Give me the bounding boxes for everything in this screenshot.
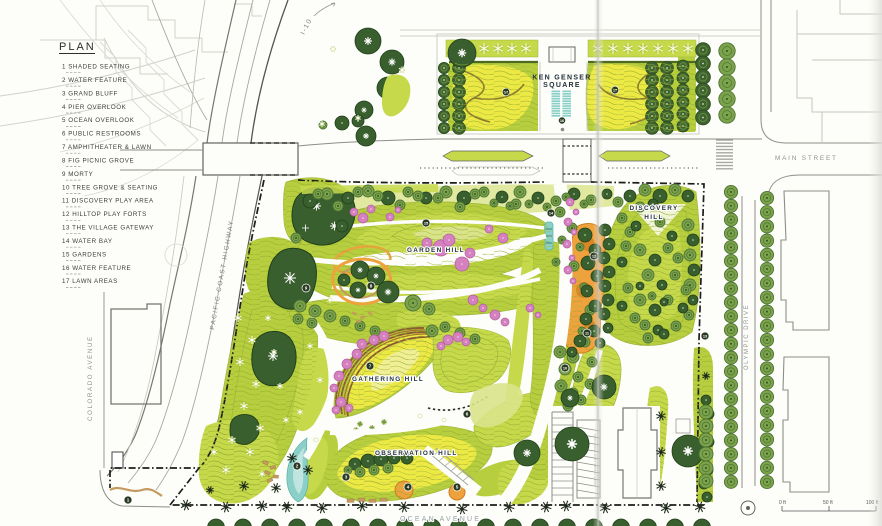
svg-text:11 DISCOVERY PLAY AREA: 11 DISCOVERY PLAY AREA bbox=[62, 198, 154, 205]
svg-text:16 WATER FEATURE: 16 WATER FEATURE bbox=[62, 265, 131, 272]
svg-text:3 GRAND BLUFF: 3 GRAND BLUFF bbox=[62, 90, 118, 97]
svg-text:2 WATER FEATURE: 2 WATER FEATURE bbox=[62, 77, 127, 84]
svg-text:14 WATER BAY: 14 WATER BAY bbox=[62, 238, 113, 245]
svg-text:5: 5 bbox=[456, 485, 459, 490]
svg-text:7 AMPHITHEATER & LAWN: 7 AMPHITHEATER & LAWN bbox=[62, 144, 152, 151]
svg-text:6: 6 bbox=[466, 412, 469, 417]
svg-text:SQUARE: SQUARE bbox=[543, 82, 581, 89]
svg-text:OCEAN AVENUE: OCEAN AVENUE bbox=[400, 516, 481, 523]
svg-text:6 PUBLIC RESTROOMS: 6 PUBLIC RESTROOMS bbox=[62, 131, 141, 138]
svg-text:9: 9 bbox=[305, 286, 308, 291]
svg-text:HILL: HILL bbox=[644, 214, 663, 221]
svg-text:PLAN: PLAN bbox=[59, 41, 96, 53]
svg-text:3: 3 bbox=[345, 475, 348, 480]
svg-text:DISCOVERY: DISCOVERY bbox=[629, 205, 678, 212]
svg-text:MAIN STREET: MAIN STREET bbox=[775, 155, 838, 162]
svg-text:2: 2 bbox=[296, 464, 299, 469]
svg-text:4 PIER OVERLOOK: 4 PIER OVERLOOK bbox=[62, 104, 127, 111]
svg-text:15 GARDENS: 15 GARDENS bbox=[62, 251, 107, 258]
svg-text:0 ft: 0 ft bbox=[779, 500, 787, 506]
svg-text:8: 8 bbox=[370, 284, 373, 289]
svg-text:1: 1 bbox=[127, 498, 130, 503]
svg-text:50 ft: 50 ft bbox=[823, 500, 833, 506]
svg-text:GATHERING HILL: GATHERING HILL bbox=[352, 376, 424, 383]
svg-text:1 SHADED SEATING: 1 SHADED SEATING bbox=[62, 64, 130, 71]
svg-text:KEN GENSER: KEN GENSER bbox=[532, 75, 591, 82]
svg-text:13 THE VILLAGE GATEWAY: 13 THE VILLAGE GATEWAY bbox=[62, 225, 154, 232]
svg-text:OLYMPIC DRIVE: OLYMPIC DRIVE bbox=[744, 304, 750, 370]
svg-text:17 LAWN AREAS: 17 LAWN AREAS bbox=[62, 278, 118, 285]
svg-text:7: 7 bbox=[369, 364, 372, 369]
svg-text:GARDEN HILL: GARDEN HILL bbox=[407, 247, 465, 254]
svg-text:12 HILLTOP PLAY FORTS: 12 HILLTOP PLAY FORTS bbox=[62, 211, 147, 218]
svg-text:5 OCEAN OVERLOOK: 5 OCEAN OVERLOOK bbox=[62, 117, 135, 124]
svg-text:OBSERVATION HILL: OBSERVATION HILL bbox=[375, 450, 458, 457]
svg-text:8 FIG PICNIC GROVE: 8 FIG PICNIC GROVE bbox=[62, 157, 134, 164]
svg-text:9 MORTY: 9 MORTY bbox=[62, 171, 93, 178]
svg-text:COLORADO AVENUE: COLORADO AVENUE bbox=[87, 335, 94, 421]
svg-text:10: 10 bbox=[563, 365, 567, 370]
svg-text:10 TREE GROVE & SEATING: 10 TREE GROVE & SEATING bbox=[62, 184, 158, 191]
svg-text:4: 4 bbox=[407, 485, 410, 490]
